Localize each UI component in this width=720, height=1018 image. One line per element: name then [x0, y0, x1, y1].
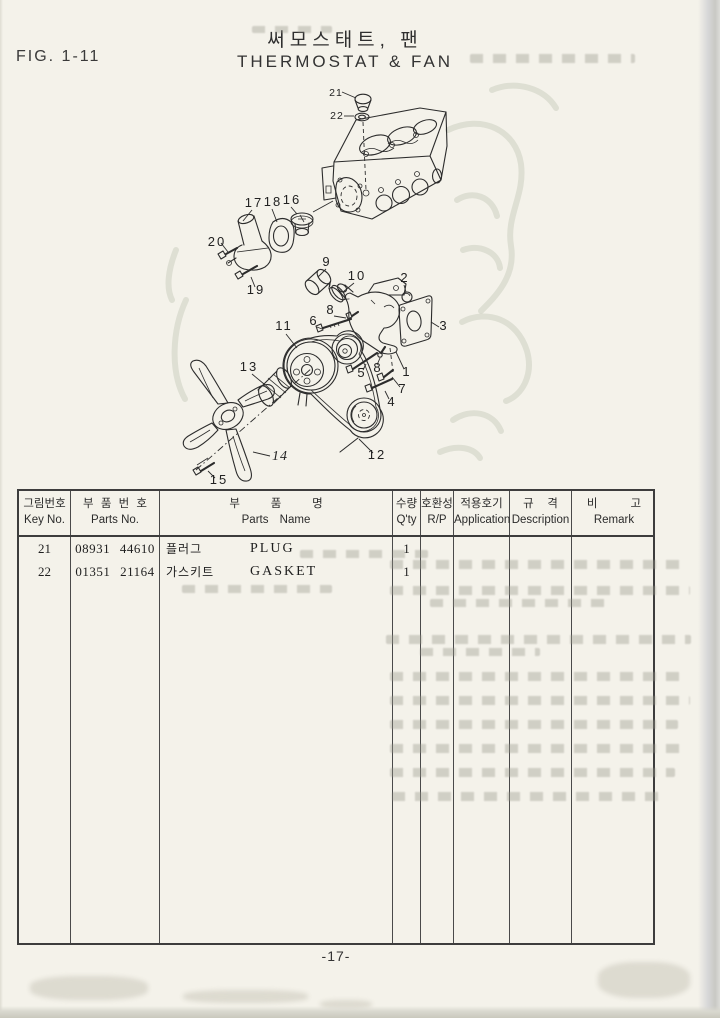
- col-header-description: 규 격Description: [510, 491, 572, 535]
- page-scan-edge-bottom: [0, 1006, 720, 1018]
- callout-22: 22: [330, 110, 344, 122]
- parts-name-korean: 가스키트: [166, 563, 250, 580]
- page-number: -17-: [17, 948, 655, 964]
- callout-4: 4: [387, 394, 396, 409]
- callout-16: 16: [283, 192, 301, 207]
- callout-numbers: 21 22 17 18 16 20 19 9 10 2 8 6 11 3 5 8…: [208, 87, 449, 487]
- parts-name-english: PLUG: [250, 541, 295, 557]
- callout-10: 10: [348, 268, 366, 283]
- callout-18: 18: [264, 194, 282, 209]
- col-header-qty: 수량Q'ty: [393, 491, 421, 535]
- remark-cell: [572, 537, 656, 560]
- parts-name-korean: 플러그: [166, 540, 250, 557]
- pump-bolts: [316, 312, 393, 392]
- cylinder-head: [322, 108, 447, 219]
- col-header-remark: 비 고Remark: [572, 491, 656, 535]
- page-scan-edge-left: [0, 0, 3, 1018]
- water-hose: [303, 267, 334, 297]
- callout-11: 11: [275, 318, 293, 333]
- catalog-page: { "page": { "fig_label": "FIG. 1-11", "t…: [0, 0, 720, 1018]
- callout-8: 8: [326, 302, 335, 317]
- crank-pulley: [347, 398, 381, 432]
- callout-8b: 8: [373, 360, 382, 375]
- parts-name-cell: 가스키트 GASKET: [160, 560, 393, 583]
- col-header-parts-no: 부 품 번 호Parts No.: [71, 491, 160, 535]
- plug-and-gasket-parts: [355, 94, 371, 196]
- callout-2: 2: [400, 270, 409, 285]
- parts-name-english: GASKET: [250, 564, 317, 580]
- callout-21: 21: [329, 87, 343, 99]
- fan-pulley: [284, 339, 338, 406]
- pump-plug: [402, 292, 412, 302]
- description-cell: [510, 537, 572, 560]
- thermostat-cover: [227, 213, 272, 270]
- key-no-cell: 21: [19, 537, 71, 560]
- callout-leader-lines: [208, 92, 439, 478]
- callout-7: 7: [398, 381, 407, 396]
- col-header-key-no: 그림번호Key No.: [19, 491, 71, 535]
- parts-no-cell: 01351 21164: [71, 560, 160, 583]
- callout-1: 1: [402, 364, 411, 379]
- col-header-application: 적용호기Application: [454, 491, 510, 535]
- col-header-rp: 호환성R/P: [421, 491, 454, 535]
- fan-spacer: [256, 365, 295, 408]
- callout-12: 12: [368, 447, 386, 462]
- parts-table-header: 그림번호Key No. 부 품 번 호Parts No. 부 품 명Parts …: [19, 491, 653, 537]
- callout-5: 5: [357, 365, 366, 380]
- page-scan-edge-right: [698, 0, 720, 1018]
- callout-6: 6: [309, 313, 318, 328]
- col-header-parts-name: 부 품 명Parts Name: [160, 491, 393, 535]
- callout-19: 19: [247, 282, 265, 297]
- callout-17: 17: [245, 195, 263, 210]
- callout-14: 14: [272, 449, 288, 464]
- callout-3: 3: [439, 318, 448, 333]
- callout-15: 15: [210, 472, 228, 487]
- key-no-cell: 22: [19, 560, 71, 583]
- callout-13: 13: [240, 359, 258, 374]
- pump-pulley-hub: [332, 334, 362, 364]
- pump-gasket: [399, 296, 432, 346]
- thermostat-gasket: [269, 219, 294, 253]
- callout-20: 20: [208, 234, 226, 249]
- callout-9: 9: [322, 254, 331, 269]
- application-cell: [454, 537, 510, 560]
- cover-bolts: [218, 248, 257, 279]
- parts-no-cell: 08931 44610: [71, 537, 160, 560]
